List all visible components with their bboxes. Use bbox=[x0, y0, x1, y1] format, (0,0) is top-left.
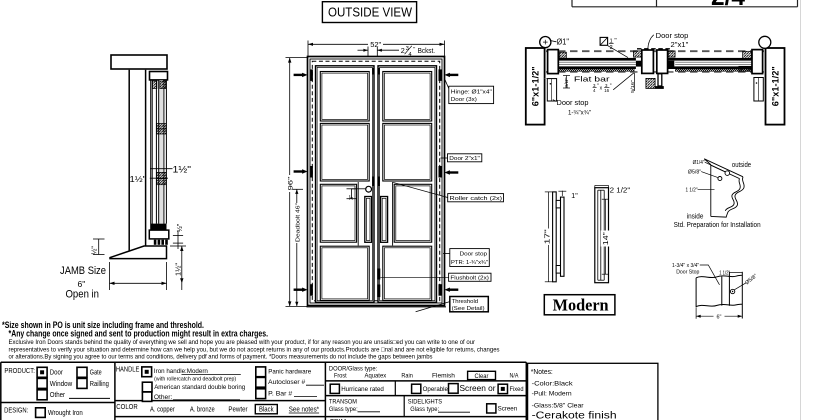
svg-text:DOOR/Glass type:: DOOR/Glass type: bbox=[329, 365, 377, 372]
svg-text:N/A: N/A bbox=[510, 373, 519, 380]
svg-text:A. bronze: A. bronze bbox=[190, 407, 215, 414]
svg-text:96": 96" bbox=[288, 175, 295, 190]
svg-text:Flushbolt (2x): Flushbolt (2x) bbox=[450, 276, 489, 282]
svg-text:P. Bar #: P. Bar # bbox=[268, 391, 292, 398]
svg-text:Ø1/4": Ø1/4" bbox=[693, 160, 705, 166]
svg-text:½": ½" bbox=[91, 246, 99, 255]
svg-text:1½": 1½" bbox=[173, 165, 192, 176]
svg-text:17": 17" bbox=[543, 229, 552, 244]
svg-text:2 1/2": 2 1/2" bbox=[610, 187, 631, 194]
svg-text:Door 2"x1": Door 2"x1" bbox=[449, 156, 480, 162]
svg-text:Clear: Clear bbox=[475, 373, 490, 380]
svg-text:Pewter: Pewter bbox=[228, 407, 248, 414]
svg-text:Open in: Open in bbox=[66, 289, 100, 301]
svg-text:DESIGN:: DESIGN: bbox=[4, 407, 28, 414]
svg-text:": " bbox=[413, 47, 415, 53]
svg-text:Ø1": Ø1" bbox=[557, 38, 570, 47]
svg-text:Door Stop: Door Stop bbox=[676, 270, 699, 276]
svg-text:½": ½" bbox=[176, 223, 184, 232]
svg-text:Flemish: Flemish bbox=[432, 373, 455, 380]
svg-text:PRODUCT:: PRODUCT: bbox=[4, 368, 35, 375]
svg-text:Door stop: Door stop bbox=[656, 31, 689, 40]
svg-text:Threshold: Threshold bbox=[452, 299, 479, 305]
svg-text:6": 6" bbox=[78, 279, 86, 289]
svg-text:Glass type:: Glass type: bbox=[410, 406, 439, 413]
svg-text:2"x1": 2"x1" bbox=[671, 40, 689, 49]
svg-text:14": 14" bbox=[603, 232, 610, 246]
svg-text:6"x1-1/2": 6"x1-1/2" bbox=[770, 66, 780, 106]
svg-text:6"x1-1/2": 6"x1-1/2" bbox=[531, 66, 541, 106]
svg-text:-Pull: Modern: -Pull: Modern bbox=[532, 391, 572, 398]
svg-text:Modern: Modern bbox=[553, 295, 609, 314]
svg-text:(See Detail): (See Detail) bbox=[452, 306, 485, 312]
svg-text:1-¾"x¾": 1-¾"x¾" bbox=[568, 111, 591, 117]
svg-text:3": 3" bbox=[349, 195, 355, 200]
svg-text:1": 1" bbox=[571, 193, 578, 200]
svg-text:A. copper: A. copper bbox=[150, 407, 175, 414]
svg-text:1 1/2": 1 1/2" bbox=[719, 270, 730, 276]
svg-text:Panic hardware: Panic hardware bbox=[268, 369, 311, 376]
svg-text:HANDLE: HANDLE bbox=[116, 366, 140, 373]
svg-text:Deadbolt 46": Deadbolt 46" bbox=[296, 203, 302, 242]
svg-text:Gate: Gate bbox=[90, 370, 102, 377]
svg-text:SIDELIGHTS: SIDELIGHTS bbox=[408, 399, 443, 406]
svg-text:-Glass:5/8" Clear: -Glass:5/8" Clear bbox=[532, 403, 585, 410]
svg-text:Door stop: Door stop bbox=[460, 252, 488, 258]
svg-text:Door (3x): Door (3x) bbox=[451, 97, 477, 103]
svg-text:TRANSOM: TRANSOM bbox=[329, 399, 357, 406]
svg-text:52": 52" bbox=[370, 40, 381, 49]
svg-text:2: 2 bbox=[401, 46, 405, 55]
svg-text:1½": 1½" bbox=[174, 263, 183, 276]
svg-text:Window: Window bbox=[50, 381, 72, 388]
svg-text:Black: Black bbox=[259, 407, 274, 414]
svg-text:Autocloser #: Autocloser # bbox=[268, 379, 305, 386]
svg-text:-Cerakote finish: -Cerakote finish bbox=[532, 410, 617, 420]
svg-text:PTR: 1-¾"x¾": PTR: 1-¾"x¾" bbox=[451, 260, 488, 266]
svg-text:1 1/2": 1 1/2" bbox=[686, 187, 698, 193]
svg-text:Door stop: Door stop bbox=[557, 98, 589, 107]
svg-text:3/8": 3/8" bbox=[564, 77, 569, 88]
svg-text:5/16": 5/16" bbox=[630, 80, 635, 93]
svg-text:Railling: Railling bbox=[90, 381, 109, 388]
svg-text:Operable: Operable bbox=[423, 386, 449, 393]
svg-text:1½": 1½" bbox=[130, 174, 147, 184]
svg-text:-Color:Black: -Color:Black bbox=[532, 381, 574, 388]
svg-text:*Notes:: *Notes: bbox=[531, 369, 553, 376]
svg-text:2/4: 2/4 bbox=[711, 0, 745, 11]
svg-text:Door: Door bbox=[50, 370, 64, 377]
svg-text:Hurricane rated: Hurricane rated bbox=[341, 386, 384, 393]
svg-text:Glass type:: Glass type: bbox=[329, 406, 358, 413]
svg-text:(with rollercatch and deadbolt: (with rollercatch and deadbolt prep) bbox=[154, 376, 236, 382]
svg-text:Wrought Iron: Wrought Iron bbox=[48, 410, 83, 417]
svg-text:1-3/4" x 3/4": 1-3/4" x 3/4" bbox=[672, 263, 699, 269]
svg-text:representatives to verify your: representatives to verify your situation… bbox=[9, 346, 500, 353]
svg-text:Screen or: Screen or bbox=[460, 384, 496, 393]
svg-text:OUTSIDE VIEW: OUTSIDE VIEW bbox=[328, 4, 413, 19]
svg-text:American standard double borin: American standard double boring bbox=[154, 384, 245, 391]
svg-text:Other: Other bbox=[50, 392, 66, 399]
svg-text:Frost: Frost bbox=[334, 373, 347, 380]
svg-text:Ø5/8": Ø5/8" bbox=[688, 170, 701, 176]
svg-text:COLOR: COLOR bbox=[116, 404, 137, 411]
svg-text:Other:: Other: bbox=[154, 394, 173, 401]
svg-text:Rain: Rain bbox=[401, 373, 413, 380]
svg-text:or alterations.By signing you: or alterations.By signing you agree to o… bbox=[9, 354, 433, 361]
svg-text:Bckst.: Bckst. bbox=[418, 46, 436, 55]
svg-text:JAMB Size: JAMB Size bbox=[60, 265, 106, 277]
svg-text:": " bbox=[610, 83, 612, 89]
svg-text:Screen: Screen bbox=[498, 406, 518, 413]
svg-text:*Any change once signed and se: *Any change once signed and sent to prod… bbox=[9, 328, 269, 339]
svg-text:Hinge: Ø1"x4": Hinge: Ø1"x4" bbox=[451, 89, 492, 95]
svg-text:6": 6" bbox=[717, 315, 722, 321]
svg-text:Roller catch (2x): Roller catch (2x) bbox=[450, 196, 503, 202]
svg-text:Aquatex: Aquatex bbox=[365, 373, 387, 380]
svg-text:Fixed: Fixed bbox=[510, 387, 524, 393]
svg-text:outside: outside bbox=[732, 160, 751, 169]
svg-text:Exclusive Iron Doors stands be: Exclusive Iron Doors stands behind the q… bbox=[9, 339, 476, 346]
svg-text:Std. Preparation for Installat: Std. Preparation for Installation bbox=[674, 220, 761, 229]
